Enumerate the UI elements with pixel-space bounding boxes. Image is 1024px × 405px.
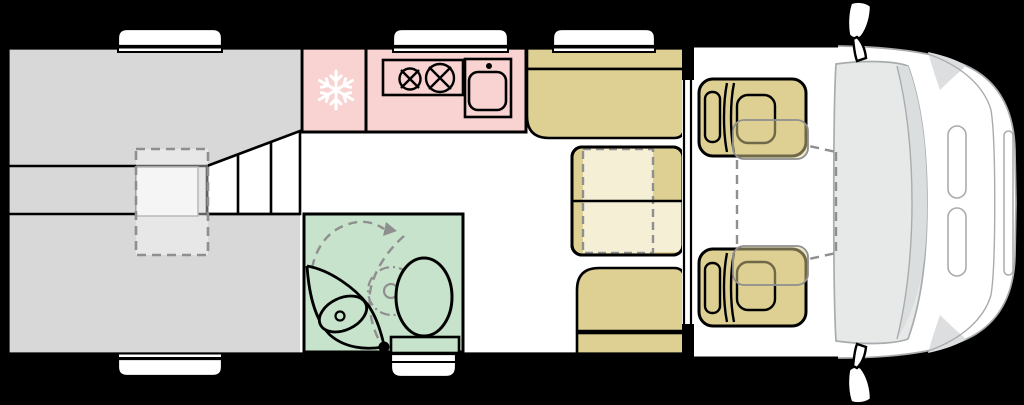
swivel-pivot-dot <box>379 342 390 353</box>
floorplan-canvas <box>0 0 1024 405</box>
kitchen-sink <box>465 59 511 117</box>
dinette-bench-rear-backrest <box>577 333 684 354</box>
cab-seat-bottom <box>699 246 808 326</box>
headlight-top <box>948 126 966 198</box>
faucet-dot <box>486 63 492 69</box>
toilet-base <box>391 337 459 353</box>
toilet-bowl <box>396 258 452 336</box>
rear-bed-area <box>8 48 300 354</box>
cab-seat-top <box>699 79 808 159</box>
dinette-bench-front-cushion <box>527 69 684 138</box>
window-rear-bottom <box>118 354 222 377</box>
window-dinette <box>553 29 655 52</box>
bathroom <box>304 214 463 353</box>
seat-swivel-ghost <box>733 120 808 159</box>
kitchen-block <box>302 48 526 132</box>
window-kitchen <box>393 29 508 52</box>
window-rear-top <box>118 29 222 52</box>
headlight-bottom <box>948 208 966 276</box>
hob-two-burner <box>383 60 463 95</box>
entry-step <box>391 354 456 377</box>
sink-basin <box>469 72 506 110</box>
seat-swivel-ghost <box>733 246 808 285</box>
dinette-bench-rear-cushion <box>577 268 684 331</box>
bed-extension-dashed <box>136 149 208 255</box>
dinette-table <box>572 147 683 255</box>
campervan-floorplan <box>0 0 1024 405</box>
front-grille-strip <box>1004 131 1013 275</box>
